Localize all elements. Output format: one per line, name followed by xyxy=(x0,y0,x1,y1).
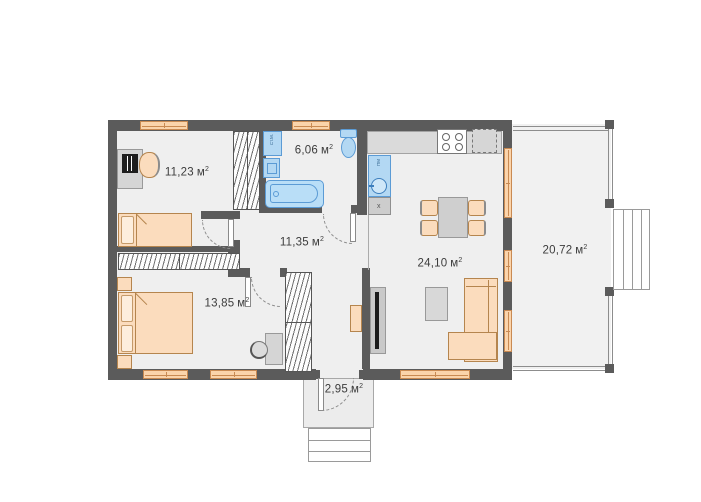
bathroom-sink xyxy=(263,158,280,178)
terrace-wall-bottom xyxy=(513,366,612,371)
room-area-label-kitchen-living: 24,10м2 xyxy=(418,257,463,270)
dining-chair xyxy=(468,200,486,216)
dishwasher-sink-unit: ПМ xyxy=(368,155,391,197)
single-bed-pillow xyxy=(121,216,134,244)
dishwasher-label: ПМ xyxy=(377,159,382,166)
coffee-table xyxy=(425,287,448,321)
step-line xyxy=(623,210,624,289)
floor-plan: Ст.М. ПМ х 11,23м2 xyxy=(0,0,701,502)
dining-chair xyxy=(468,220,486,236)
hall-living-boundary-line xyxy=(368,215,369,270)
wardrobe-bedroom1 xyxy=(233,131,260,210)
step-line xyxy=(309,440,370,441)
window-living-east-lower xyxy=(504,310,512,352)
window-living-south xyxy=(400,370,470,379)
room-area-label-porch: 2,95м2 xyxy=(325,383,363,396)
window-kitchen-east xyxy=(504,148,512,218)
double-bed-blanket-line xyxy=(135,293,136,353)
wall-bedroom1-south xyxy=(201,211,240,219)
wardrobe-divider xyxy=(247,132,248,209)
window-bathroom-north xyxy=(292,121,330,130)
wardrobe-divider xyxy=(286,322,311,323)
office-chair xyxy=(139,152,160,178)
monitor-icon xyxy=(122,154,138,173)
window-bedroom2-south-right xyxy=(210,370,257,379)
tv-screen xyxy=(375,292,379,349)
room-area-label-hallway: 11,35м2 xyxy=(280,236,324,249)
wall-hall-living xyxy=(362,268,370,369)
wall-bedroom2-north xyxy=(240,268,250,277)
wall-left xyxy=(108,120,117,380)
nightstand xyxy=(117,277,132,291)
hallway-console xyxy=(350,305,362,332)
window-bedroom1-north xyxy=(140,121,188,130)
stool xyxy=(250,341,268,359)
wardrobe-hallway xyxy=(285,272,312,372)
room-area-label-bedroom-1: 11,23м2 xyxy=(165,166,209,179)
stove xyxy=(437,129,467,154)
washing-machine-label: Ст.М. xyxy=(270,134,275,145)
terrace-wall-top xyxy=(513,126,609,131)
sofa-section-chaise xyxy=(448,332,497,360)
tv-panel xyxy=(370,287,386,354)
terrace-post xyxy=(605,120,614,129)
wardrobe-divider xyxy=(179,254,180,269)
vent-unit-label: х xyxy=(377,203,381,210)
single-bed-blanket-line xyxy=(136,214,137,246)
window-bedroom2-south-left xyxy=(143,370,188,379)
bathtub xyxy=(265,180,324,208)
room-area-label-bathroom: 6,06м2 xyxy=(295,144,333,157)
double-bed-pillow xyxy=(121,295,133,322)
step-line xyxy=(309,451,370,452)
porch-steps xyxy=(308,428,371,462)
kitchen-vent-unit: х xyxy=(368,197,391,215)
dining-table xyxy=(438,197,468,238)
porch-door-jamb xyxy=(359,370,363,379)
washing-machine: Ст.М. xyxy=(263,131,282,156)
nightstand xyxy=(117,355,132,369)
terrace-wall-right-lower xyxy=(608,293,613,369)
dining-chair xyxy=(420,200,438,216)
step-line xyxy=(641,210,642,289)
terrace-post xyxy=(605,364,614,373)
fridge xyxy=(472,129,497,153)
dining-chair xyxy=(420,220,438,236)
wall-kitchen-west xyxy=(357,131,367,215)
step-line xyxy=(632,210,633,289)
room-area-label-bedroom-2: 13,85м2 xyxy=(205,297,250,310)
window-living-east-upper xyxy=(504,250,512,282)
terrace-post xyxy=(605,199,614,208)
double-bed-pillow xyxy=(121,325,133,352)
room-area-label-terrace: 20,72м2 xyxy=(543,244,588,257)
terrace-stairs xyxy=(613,209,650,290)
wardrobe-bedroom2 xyxy=(118,253,240,270)
toilet-bowl xyxy=(341,137,356,158)
terrace-wall-right-upper xyxy=(608,126,613,206)
